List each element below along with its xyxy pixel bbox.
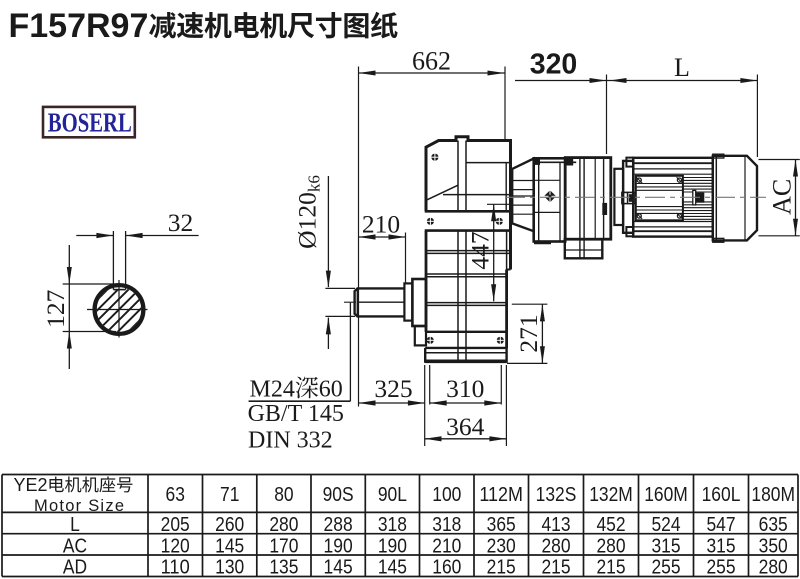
svg-text:280: 280 — [596, 534, 625, 557]
svg-text:120: 120 — [161, 534, 190, 557]
svg-text:100: 100 — [432, 483, 461, 506]
svg-text:L: L — [674, 53, 690, 82]
svg-text:L: L — [70, 513, 80, 536]
svg-text:132S: 132S — [536, 483, 577, 506]
svg-text:145: 145 — [324, 556, 353, 579]
svg-text:112M: 112M — [479, 483, 523, 506]
svg-text:F157R97: F157R97 — [9, 7, 149, 45]
svg-text:190: 190 — [324, 534, 353, 557]
svg-text:130: 130 — [215, 556, 244, 579]
svg-text:524: 524 — [651, 513, 680, 536]
svg-text:364: 364 — [446, 412, 485, 441]
svg-text:452: 452 — [596, 513, 625, 536]
svg-text:547: 547 — [706, 513, 735, 536]
svg-text:145: 145 — [215, 534, 244, 557]
svg-text:280: 280 — [269, 513, 298, 536]
svg-text:230: 230 — [487, 534, 516, 557]
svg-text:145: 145 — [378, 556, 407, 579]
svg-text:210: 210 — [362, 210, 400, 239]
svg-text:215: 215 — [596, 556, 625, 579]
svg-text:318: 318 — [432, 513, 461, 536]
svg-text:413: 413 — [541, 513, 570, 536]
svg-text:255: 255 — [706, 556, 735, 579]
svg-text:GB/T 145: GB/T 145 — [248, 401, 344, 427]
svg-text:280: 280 — [759, 556, 788, 579]
svg-text:205: 205 — [161, 513, 190, 536]
svg-text:271: 271 — [514, 314, 543, 352]
svg-text:71: 71 — [220, 483, 239, 506]
svg-text:AD: AD — [63, 556, 87, 579]
svg-text:63: 63 — [166, 483, 185, 506]
svg-text:280: 280 — [541, 534, 570, 557]
svg-text:320: 320 — [530, 49, 578, 81]
svg-text:447: 447 — [466, 231, 495, 270]
svg-text:160L: 160L — [702, 483, 741, 506]
svg-text:325: 325 — [374, 374, 412, 403]
svg-text:127: 127 — [41, 289, 70, 328]
svg-text:210: 210 — [432, 534, 461, 557]
svg-text:635: 635 — [759, 513, 788, 536]
svg-text:318: 318 — [378, 513, 407, 536]
svg-text:M24: M24 — [250, 376, 295, 402]
svg-text:135: 135 — [269, 556, 298, 579]
svg-text:350: 350 — [759, 534, 788, 557]
svg-text:BOSERL: BOSERL — [48, 107, 132, 138]
svg-text:215: 215 — [487, 556, 516, 579]
svg-text:170: 170 — [269, 534, 298, 557]
svg-text:110: 110 — [161, 556, 190, 579]
svg-text:365: 365 — [487, 513, 516, 536]
svg-text:AC: AC — [768, 179, 797, 215]
svg-text:DIN 332: DIN 332 — [248, 427, 333, 453]
svg-text:AC: AC — [63, 534, 87, 557]
svg-text:288: 288 — [324, 513, 353, 536]
svg-text:90L: 90L — [378, 483, 407, 506]
svg-text:60: 60 — [319, 376, 343, 402]
svg-text:YE2: YE2 — [14, 475, 48, 495]
svg-text:315: 315 — [651, 534, 680, 557]
svg-text:255: 255 — [651, 556, 680, 579]
svg-text:80: 80 — [274, 483, 293, 506]
svg-text:310: 310 — [446, 374, 484, 403]
svg-text:180M: 180M — [751, 483, 795, 506]
svg-text:90S: 90S — [323, 483, 354, 506]
svg-text:32: 32 — [168, 208, 194, 237]
svg-text:215: 215 — [541, 556, 570, 579]
svg-text:160: 160 — [432, 556, 461, 579]
svg-text:190: 190 — [378, 534, 407, 557]
svg-text:160M: 160M — [644, 483, 688, 506]
svg-text:315: 315 — [706, 534, 735, 557]
svg-text:132M: 132M — [589, 483, 633, 506]
svg-text:662: 662 — [412, 47, 451, 76]
svg-text:260: 260 — [215, 513, 244, 536]
